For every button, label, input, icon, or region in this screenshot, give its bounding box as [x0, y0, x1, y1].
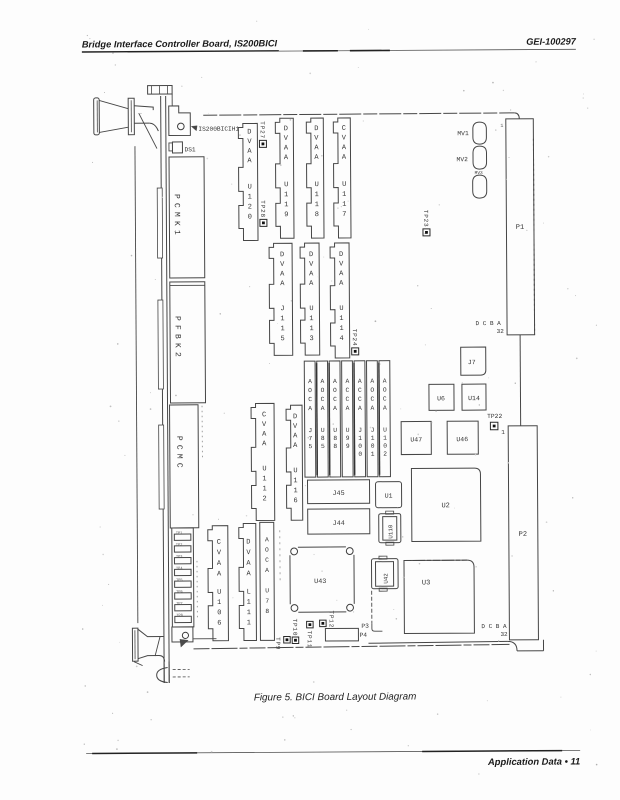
svg-text:U: U — [265, 587, 269, 594]
svg-text:U: U — [284, 181, 288, 189]
svg-text:V: V — [247, 138, 252, 146]
svg-text:V: V — [284, 135, 289, 143]
svg-text:A: A — [358, 378, 362, 385]
svg-text:1: 1 — [339, 315, 343, 323]
svg-text:TP2: TP2 — [176, 544, 183, 548]
svg-text:V: V — [339, 261, 344, 269]
svg-text:D: D — [314, 125, 318, 133]
svg-text:U: U — [262, 465, 266, 473]
svg-text:DS1: DS1 — [184, 146, 195, 153]
svg-text:A: A — [342, 144, 347, 152]
svg-text:4: 4 — [340, 335, 344, 343]
svg-text:D: D — [247, 128, 251, 136]
svg-text:0: 0 — [371, 443, 375, 450]
svg-text:U2: U2 — [441, 502, 449, 510]
svg-text:V: V — [314, 135, 319, 143]
svg-text:D: D — [293, 413, 297, 421]
svg-text:A: A — [342, 154, 347, 162]
svg-text:1: 1 — [284, 201, 288, 209]
svg-text:6: 6 — [217, 620, 221, 628]
svg-text:GEI-100297: GEI-100297 — [526, 36, 576, 46]
svg-text:A: A — [383, 378, 387, 385]
svg-text:A: A — [293, 442, 298, 450]
svg-text:7: 7 — [265, 598, 269, 605]
svg-text:TP5: TP5 — [176, 579, 183, 583]
svg-text:TP22: TP22 — [487, 413, 502, 420]
svg-text:TP28: TP28 — [259, 200, 266, 218]
svg-text:A: A — [333, 378, 337, 385]
svg-text:A: A — [339, 270, 344, 278]
svg-text:O: O — [308, 387, 312, 394]
svg-text:A: A — [383, 405, 387, 412]
svg-text:P3: P3 — [361, 623, 369, 630]
svg-text:A: A — [217, 560, 222, 568]
svg-text:U: U — [217, 589, 221, 597]
svg-text:U: U — [339, 305, 343, 313]
svg-text:U: U — [342, 181, 346, 189]
svg-text:A: A — [262, 431, 267, 439]
svg-text:6: 6 — [293, 497, 297, 505]
svg-text:U: U — [309, 305, 313, 313]
svg-text:1: 1 — [315, 201, 319, 209]
svg-text:3: 3 — [310, 335, 314, 343]
svg-text:9: 9 — [284, 211, 288, 219]
svg-text:U: U — [315, 181, 319, 189]
svg-text:TP10: TP10 — [291, 619, 298, 637]
svg-text:O: O — [383, 387, 387, 394]
svg-text:TP27: TP27 — [259, 121, 266, 139]
svg-text:1: 1 — [284, 191, 288, 199]
svg-text:1: 1 — [309, 325, 313, 333]
svg-text:U43: U43 — [314, 578, 326, 586]
svg-text:A: A — [370, 405, 374, 412]
svg-text:A: A — [293, 432, 298, 440]
svg-text:A: A — [309, 270, 314, 278]
svg-text:U: U — [321, 427, 325, 434]
svg-text:1: 1 — [247, 609, 251, 617]
svg-text:A: A — [284, 144, 289, 152]
svg-text:C: C — [346, 396, 350, 403]
svg-text:U46: U46 — [456, 436, 468, 443]
svg-text:TP24: TP24 — [351, 329, 358, 347]
svg-text:A: A — [280, 270, 285, 278]
svg-text:0: 0 — [248, 213, 252, 221]
svg-text:0: 0 — [358, 443, 362, 450]
svg-text:PFBK2: PFBK2 — [172, 316, 181, 361]
svg-text:TP12: TP12 — [328, 610, 335, 628]
svg-text:U: U — [293, 467, 297, 475]
svg-text:1: 1 — [309, 315, 313, 323]
svg-text:U6: U6 — [437, 395, 445, 402]
svg-text:D: D — [339, 251, 343, 259]
svg-text:TP7: TP7 — [176, 602, 183, 606]
svg-text:A: A — [321, 378, 325, 385]
svg-text:U110: U110 — [387, 524, 394, 538]
svg-text:C: C — [358, 387, 362, 394]
svg-text:P4: P4 — [359, 632, 367, 639]
svg-text:1: 1 — [248, 193, 252, 201]
svg-text:IS200BICIH1: IS200BICIH1 — [198, 126, 239, 133]
svg-text:PCMC: PCMC — [174, 436, 183, 472]
svg-text:D: D — [246, 538, 250, 546]
svg-text:C: C — [217, 539, 221, 547]
svg-text:1: 1 — [293, 487, 297, 495]
svg-text:1: 1 — [247, 599, 251, 607]
svg-text:1: 1 — [342, 201, 346, 209]
svg-text:A: A — [246, 570, 251, 578]
svg-text:A: A — [321, 405, 325, 412]
svg-text:2: 2 — [248, 203, 252, 211]
svg-text:J: J — [308, 427, 312, 434]
svg-text:0: 0 — [383, 443, 387, 450]
svg-text:A: A — [314, 144, 319, 152]
svg-text:1: 1 — [342, 191, 346, 199]
svg-text:C: C — [383, 396, 387, 403]
svg-text:J: J — [358, 427, 362, 434]
svg-text:A: A — [346, 405, 350, 412]
svg-text:V: V — [342, 134, 347, 142]
svg-text:J7: J7 — [468, 359, 476, 366]
svg-text:O: O — [333, 387, 337, 394]
svg-text:A: A — [247, 157, 252, 165]
svg-text:J: J — [280, 305, 284, 313]
svg-text:D: D — [284, 125, 288, 133]
svg-text:V: V — [217, 549, 222, 557]
svg-text:MV2: MV2 — [457, 156, 469, 163]
svg-text:U42: U42 — [383, 573, 390, 584]
svg-text:TP9: TP9 — [274, 637, 281, 650]
svg-text:A: A — [217, 570, 222, 578]
svg-text:1: 1 — [262, 485, 266, 493]
svg-text:V: V — [262, 421, 267, 429]
svg-text:1: 1 — [383, 435, 387, 442]
svg-text:U1: U1 — [385, 493, 393, 500]
svg-text:TP3: TP3 — [176, 555, 183, 559]
svg-text:A: A — [333, 405, 337, 412]
svg-text:32: 32 — [500, 631, 508, 638]
svg-text:A: A — [265, 567, 269, 574]
svg-text:Application Data • 11: Application Data • 11 — [487, 755, 580, 767]
svg-text:5: 5 — [281, 335, 285, 343]
svg-text:A: A — [314, 154, 319, 162]
svg-text:1: 1 — [371, 451, 375, 458]
svg-text:O: O — [265, 547, 269, 554]
svg-text:9: 9 — [346, 435, 350, 442]
svg-text:A: A — [284, 154, 289, 162]
svg-text:8: 8 — [333, 435, 337, 442]
svg-text:1: 1 — [280, 325, 284, 333]
svg-text:P2: P2 — [519, 531, 527, 539]
svg-text:0: 0 — [217, 609, 221, 617]
svg-text:8: 8 — [265, 608, 269, 615]
svg-text:D C B A: D C B A — [481, 623, 507, 630]
svg-text:D C B A: D C B A — [476, 320, 502, 327]
svg-text:A: A — [262, 440, 267, 448]
svg-text:U3: U3 — [422, 579, 430, 587]
svg-text:C: C — [358, 396, 362, 403]
svg-text:2: 2 — [383, 451, 387, 458]
svg-text:O: O — [321, 387, 325, 394]
svg-text:1: 1 — [280, 315, 284, 323]
svg-text:U: U — [248, 183, 252, 191]
svg-text:TP1: TP1 — [176, 532, 183, 536]
svg-text:TP6: TP6 — [176, 591, 183, 595]
svg-text:C: C — [265, 557, 269, 564]
svg-text:U14: U14 — [468, 395, 480, 402]
svg-text:1: 1 — [262, 475, 266, 483]
svg-text:Figure 5. BICI Board Layout D: Figure 5. BICI Board Layout Diagram — [254, 691, 417, 703]
svg-text:A: A — [246, 560, 251, 568]
svg-text:1: 1 — [358, 435, 362, 442]
svg-text:Bridge Interface Controller Bo: Bridge Interface Controller Board, IS200… — [82, 38, 278, 49]
svg-text:1: 1 — [339, 325, 343, 333]
svg-text:2: 2 — [262, 495, 266, 503]
svg-text:A: A — [247, 148, 252, 156]
svg-text:D: D — [309, 251, 313, 259]
svg-text:7: 7 — [308, 435, 312, 442]
svg-text:V: V — [293, 423, 298, 431]
svg-text:A: A — [345, 378, 349, 385]
svg-text:8: 8 — [321, 435, 325, 442]
svg-text:U: U — [383, 427, 387, 434]
svg-text:1: 1 — [217, 599, 221, 607]
svg-text:C: C — [333, 396, 337, 403]
svg-text:TP8: TP8 — [176, 614, 183, 618]
svg-text:P1: P1 — [516, 224, 524, 232]
svg-text:V: V — [280, 261, 285, 269]
svg-text:9: 9 — [346, 443, 350, 450]
svg-text:MV1: MV1 — [457, 130, 469, 137]
svg-text:C: C — [345, 387, 349, 394]
svg-text:A: A — [370, 378, 374, 385]
svg-text:U: U — [346, 427, 350, 434]
svg-text:1: 1 — [315, 191, 319, 199]
svg-text:MV3: MV3 — [475, 170, 483, 176]
svg-text:32: 32 — [497, 328, 505, 335]
svg-text:1: 1 — [500, 123, 503, 129]
svg-text:1: 1 — [371, 435, 375, 442]
svg-text:A: A — [309, 280, 314, 288]
svg-text:C: C — [342, 125, 346, 133]
svg-text:5: 5 — [308, 443, 312, 450]
svg-text:C: C — [262, 411, 266, 419]
svg-text:TP4: TP4 — [176, 567, 183, 571]
svg-text:8: 8 — [333, 443, 337, 450]
svg-text:C: C — [321, 396, 325, 403]
svg-text:D: D — [280, 251, 284, 259]
svg-text:A: A — [308, 378, 312, 385]
svg-text:5: 5 — [321, 443, 325, 450]
svg-text:J45: J45 — [332, 490, 344, 498]
svg-text:V: V — [246, 549, 251, 557]
svg-text:7: 7 — [342, 211, 346, 219]
svg-text:1: 1 — [247, 619, 251, 627]
svg-text:O: O — [370, 387, 374, 394]
svg-text:TP11: TP11 — [306, 631, 313, 649]
svg-text:L: L — [247, 588, 251, 596]
svg-text:U47: U47 — [410, 436, 422, 443]
svg-text:1: 1 — [501, 429, 505, 436]
svg-text:J44: J44 — [333, 520, 345, 528]
svg-text:A: A — [339, 280, 344, 288]
svg-text:V: V — [309, 261, 314, 269]
svg-text:A: A — [280, 280, 285, 288]
svg-text:PCMK1: PCMK1 — [172, 194, 181, 239]
svg-text:C: C — [308, 396, 312, 403]
svg-text:A: A — [265, 536, 269, 543]
svg-text:0: 0 — [358, 451, 362, 458]
svg-text:A: A — [308, 405, 312, 412]
svg-text:C: C — [370, 396, 374, 403]
svg-text:8: 8 — [315, 211, 319, 219]
svg-text:U: U — [333, 427, 337, 434]
svg-text:A: A — [358, 405, 362, 412]
svg-text:1: 1 — [293, 477, 297, 485]
